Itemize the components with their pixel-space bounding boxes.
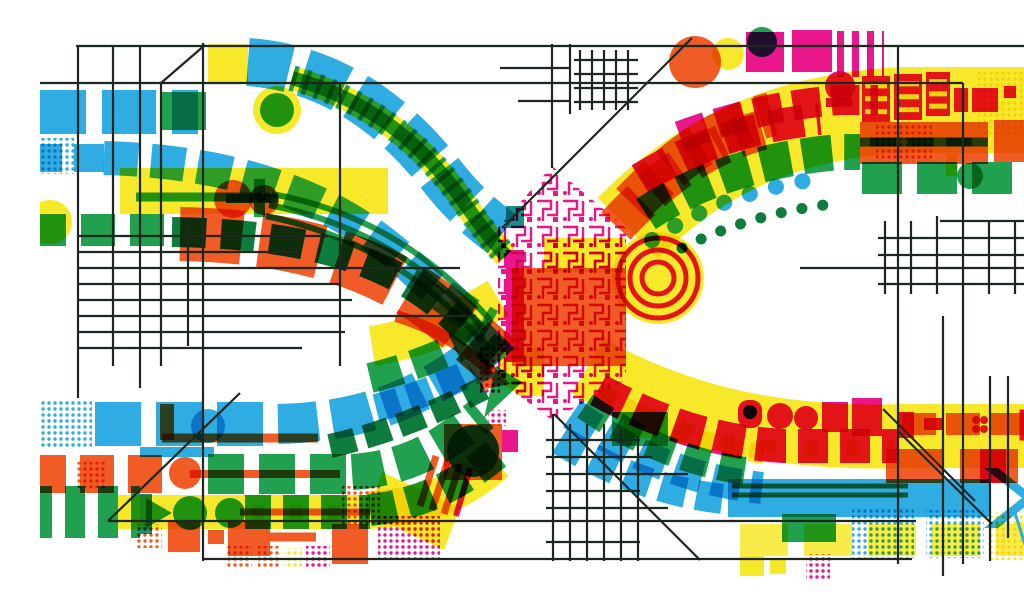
tl-yellow-square bbox=[208, 44, 248, 82]
halftone-cyan bbox=[852, 508, 914, 558]
dot-magenta bbox=[972, 416, 980, 424]
halftone-orange bbox=[258, 546, 280, 568]
halftone-orange bbox=[226, 546, 252, 568]
block-magenta bbox=[506, 250, 524, 362]
dot-magenta bbox=[794, 406, 818, 430]
block-magenta bbox=[852, 398, 882, 436]
block-magenta bbox=[954, 88, 968, 112]
dot-dgreen bbox=[743, 405, 757, 419]
bl-halftone bbox=[40, 401, 92, 447]
block-dgreen bbox=[226, 194, 278, 203]
dot-magenta bbox=[825, 71, 855, 101]
illustration-canvas bbox=[40, 16, 1024, 588]
dot-dgreen bbox=[447, 425, 499, 477]
dot-magenta bbox=[980, 425, 988, 433]
halftone-orange bbox=[136, 524, 162, 548]
block-orange bbox=[208, 530, 224, 544]
dot-orange bbox=[669, 36, 721, 88]
dot-yellow bbox=[712, 38, 744, 70]
halftone-magenta bbox=[306, 546, 330, 568]
block-magenta bbox=[822, 402, 848, 432]
block-magenta bbox=[972, 88, 998, 112]
tr-glyph bbox=[926, 72, 950, 116]
halftone-cyan bbox=[926, 510, 984, 558]
tr-magenta-square bbox=[746, 32, 784, 72]
block-magenta bbox=[924, 418, 942, 430]
block-orange bbox=[994, 120, 1024, 162]
illustration-svg bbox=[40, 16, 1024, 588]
block-magenta bbox=[502, 430, 518, 452]
dot-magenta bbox=[767, 403, 793, 429]
bl-chain bbox=[168, 522, 200, 552]
tl-ring-core bbox=[260, 93, 294, 127]
block-magenta bbox=[792, 30, 832, 72]
halftone-magenta bbox=[488, 410, 506, 426]
block-magenta bbox=[1004, 86, 1016, 98]
dot-green bbox=[957, 163, 983, 189]
block-magenta bbox=[544, 238, 626, 272]
block-magenta bbox=[826, 98, 852, 107]
halftone-yellow bbox=[988, 512, 1024, 560]
dot-magenta bbox=[972, 425, 980, 433]
tl-green-square bbox=[160, 92, 206, 130]
dot-magenta bbox=[980, 416, 988, 424]
